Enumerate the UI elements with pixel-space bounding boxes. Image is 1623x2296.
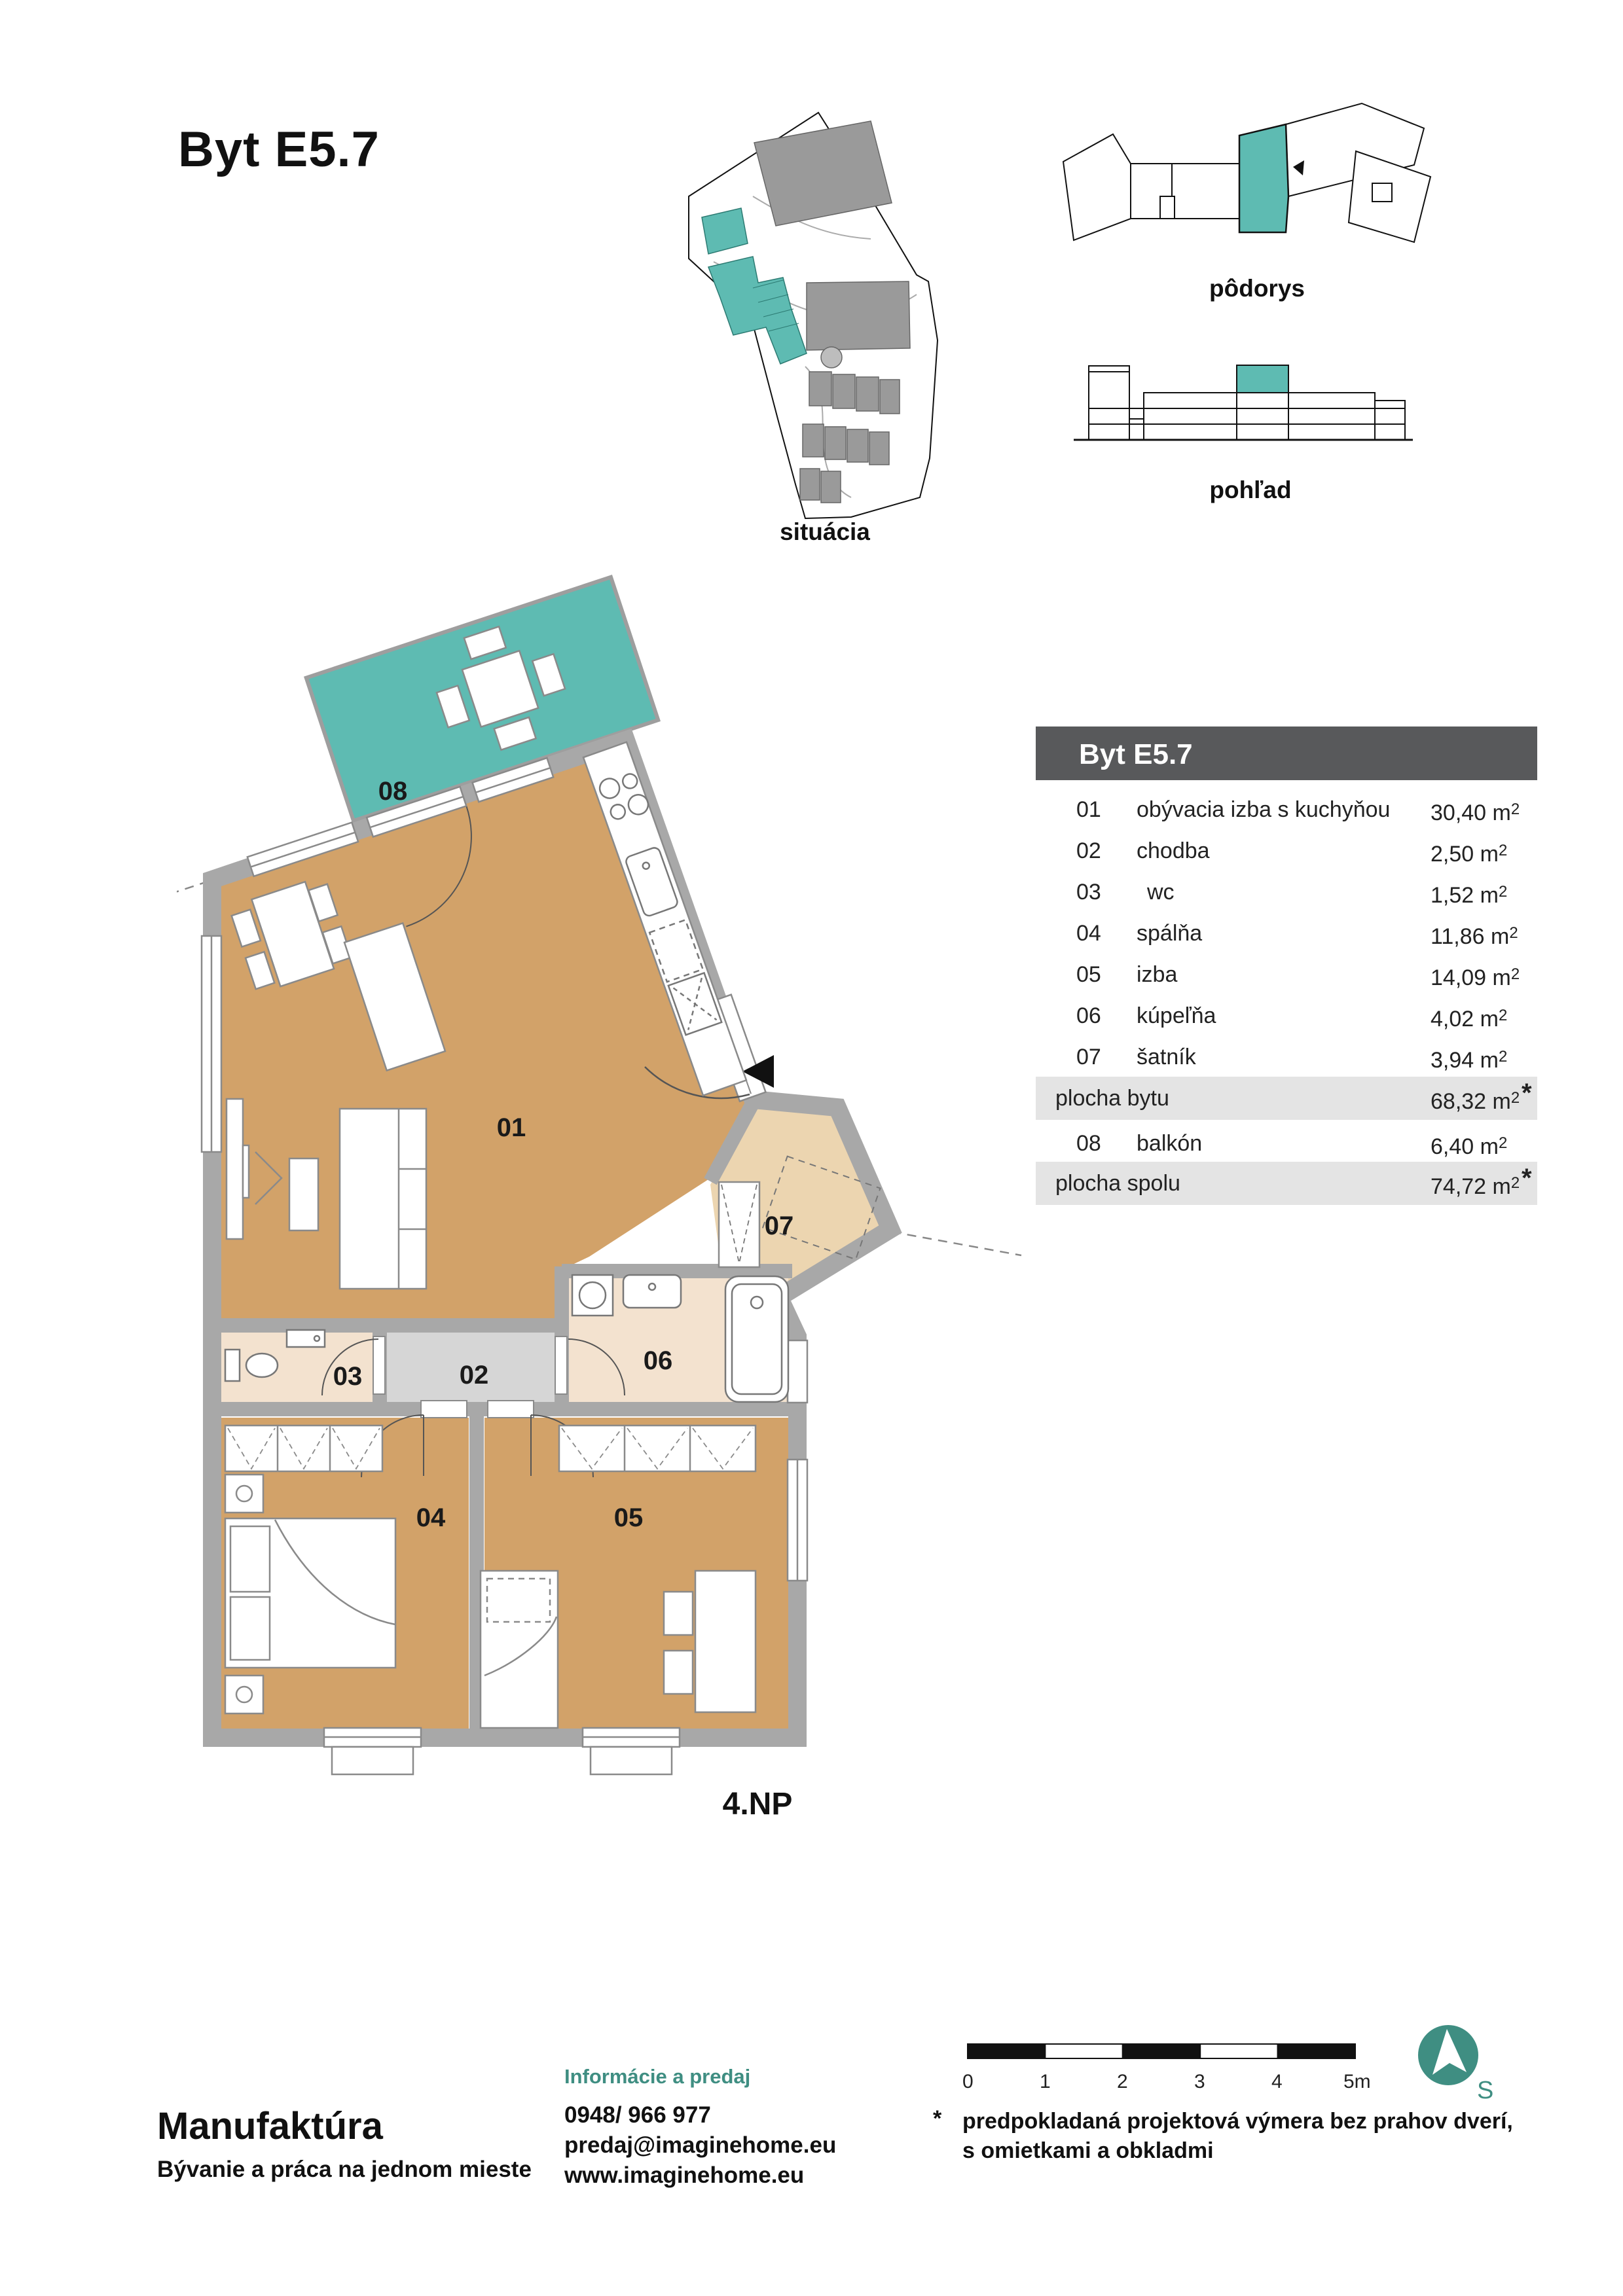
table-row: 07 šatník 3,94 m2	[1036, 1041, 1537, 1073]
brand-logo: Manufaktúra	[157, 2104, 383, 2148]
site-building-gray-2	[807, 281, 910, 350]
footnote-star: *	[1522, 1071, 1532, 1115]
tv-sideboard	[227, 1099, 243, 1239]
site-plan	[668, 98, 956, 556]
floor-level-label: 4.NP	[723, 1787, 793, 1821]
main-floor-plan: 08 01 07 03 02 06 04 05 4.NP	[177, 563, 1028, 1872]
footnote-star: *	[1522, 1157, 1532, 1200]
scale-bar: 0 1 2 3 4 5m	[956, 2016, 1388, 2101]
single-bed	[481, 1571, 558, 1728]
table-row: 06 kúpeľňa 4,02 m2	[1036, 999, 1537, 1032]
disclaimer-star: *	[933, 2106, 941, 2132]
nightstand-1	[225, 1475, 263, 1513]
floor-overview-highlight	[1239, 124, 1288, 232]
contact-email[interactable]: predaj@imaginehome.eu	[564, 2132, 836, 2159]
contact-web[interactable]: www.imaginehome.eu	[564, 2162, 804, 2189]
tv-icon	[243, 1145, 249, 1198]
elevation-highlight	[1237, 365, 1288, 393]
toilet-tank-icon	[225, 1350, 240, 1381]
window-sill-1	[332, 1747, 413, 1774]
window-sill-2	[591, 1747, 672, 1774]
area-table-title: Byt E5.7	[1079, 738, 1193, 771]
floor-overview-label: pôdorys	[1198, 275, 1316, 302]
scale-tick-2: 2	[1117, 2071, 1128, 2092]
table-row: 04 spálňa 11,86 m2	[1036, 917, 1537, 950]
north-letter: S	[1477, 2077, 1493, 2104]
window-bath	[788, 1340, 807, 1403]
desk	[695, 1571, 756, 1712]
contact-phone[interactable]: 0948/ 966 977	[564, 2102, 711, 2128]
wardrobe-04	[225, 1426, 382, 1471]
brand-tagline: Bývanie a práca na jednom mieste	[157, 2157, 532, 2183]
room-label-06: 06	[644, 1346, 673, 1375]
room-label-03: 03	[333, 1362, 363, 1391]
living-room-floor	[212, 740, 753, 1321]
room-label-05: 05	[614, 1503, 644, 1532]
table-row: 01 obývacia izba s kuchyňou 30,40 m2	[1036, 793, 1537, 826]
coffee-table	[289, 1158, 318, 1230]
room-label-02: 02	[460, 1361, 489, 1390]
desk-chair-2	[664, 1651, 693, 1694]
area-flat-bar: plocha bytu 68,32 m2 *	[1036, 1077, 1537, 1120]
scale-tick-3: 3	[1194, 2071, 1205, 2092]
area-table-header: Byt E5.7	[1036, 726, 1537, 780]
dashed-line-right	[892, 1232, 1021, 1255]
room-label-07: 07	[765, 1211, 794, 1240]
scale-tick-1: 1	[1040, 2071, 1051, 2092]
disclaimer-line1: predpokladaná projektová výmera bez prah…	[962, 2109, 1513, 2134]
bathtub-icon	[725, 1276, 788, 1402]
area-total-bar: plocha spolu 74,72 m2 *	[1036, 1162, 1537, 1205]
north-indicator: S	[1408, 2016, 1512, 2114]
sofa	[340, 1109, 426, 1289]
scale-tick-4: 4	[1271, 2071, 1283, 2092]
contact-heading: Informácie a predaj	[564, 2065, 750, 2089]
site-plan-label: situácia	[766, 518, 884, 546]
scale-tick-0: 0	[962, 2071, 974, 2092]
nightstand-2	[225, 1676, 263, 1713]
table-row: 02 chodba 2,50 m2	[1036, 834, 1537, 867]
brochure-page: Byt E5.7 situácia	[0, 0, 1623, 2296]
desk-chair-1	[664, 1592, 693, 1635]
scale-tick-5: 5m	[1343, 2071, 1371, 2092]
table-row: 03 wc 1,52 m2	[1036, 876, 1537, 908]
room-label-01: 01	[497, 1113, 526, 1142]
elevation-label: pohľad	[1192, 476, 1309, 504]
bath-sink-icon	[623, 1275, 681, 1308]
toilet-icon	[246, 1354, 278, 1377]
table-row: 05 izba 14,09 m2	[1036, 958, 1537, 991]
room-label-08: 08	[378, 777, 408, 806]
disclaimer-line2: s omietkami a obkladmi	[962, 2138, 1214, 2164]
room-label-04: 04	[416, 1503, 446, 1532]
page-title: Byt E5.7	[178, 121, 380, 178]
table-row: 08 balkón 6,40 m2	[1036, 1127, 1537, 1160]
